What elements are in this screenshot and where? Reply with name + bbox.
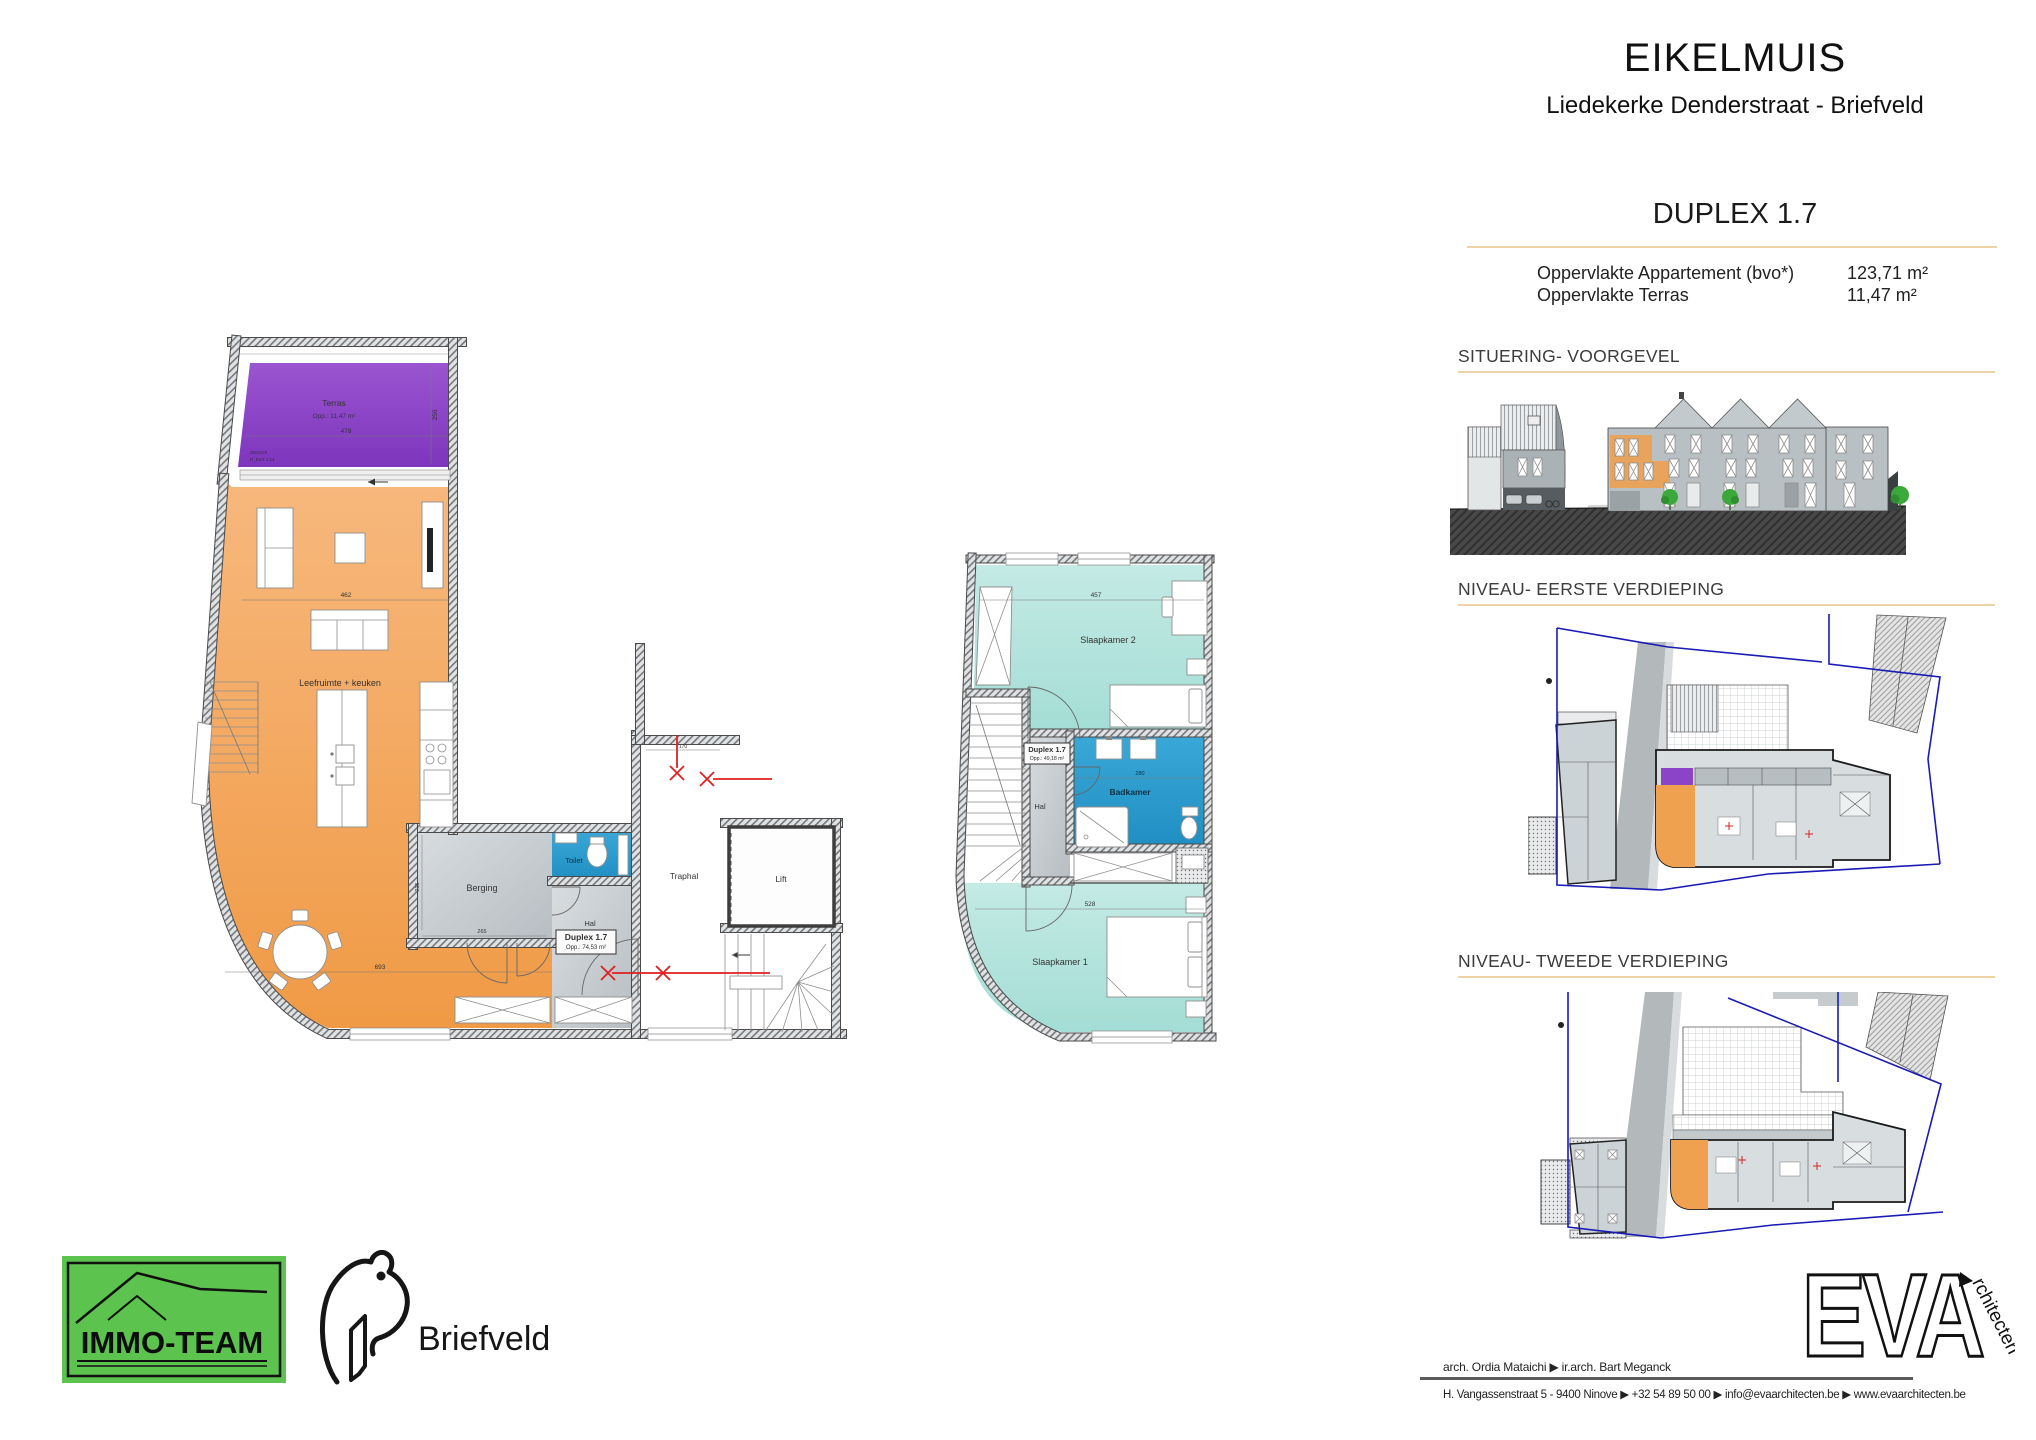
section-niveau2: NIVEAU- TWEEDE VERDIEPING — [1458, 951, 1729, 972]
area-value: 123,71 m² — [1847, 263, 1928, 283]
stairs-level2 — [963, 703, 1026, 881]
area-table: Oppervlakte Appartement (bvo*) 123,71 m²… — [1537, 262, 1928, 306]
plan-sheet: EIKELMUIS Liedekerke Denderstraat - Brie… — [0, 0, 2036, 1440]
dim-bad: 280 — [1135, 771, 1144, 777]
horse-eye — [377, 1272, 386, 1281]
briefveld-text: Briefveld — [418, 1320, 550, 1358]
tag-area: Opp.: 49,18 m² — [1030, 756, 1065, 762]
section-niveau1: NIVEAU- EERSTE VERDIEPING — [1458, 579, 1724, 600]
highlight-terras — [1661, 768, 1693, 785]
label-hal: Hal — [584, 919, 596, 928]
label-traphal: Traphal — [670, 871, 699, 881]
inner-roof-outline — [108, 1296, 166, 1320]
dim-terras-h: 250 — [432, 409, 439, 420]
area-label: Oppervlakte Terras — [1537, 284, 1842, 306]
architects-line: arch. Ordia Mataichi ▶ ir.arch. Bart Meg… — [1443, 1360, 1671, 1374]
elevation-drawing — [1448, 383, 2008, 568]
eva-logo: EVA rchitecten — [1800, 1256, 2015, 1378]
label-terras: Terras — [322, 398, 346, 408]
area-label: Oppervlakte Appartement (bvo*) — [1537, 262, 1842, 284]
dim-terras-w: 478 — [341, 428, 352, 435]
contact-line: H. Vangassenstraat 5 - 9400 Ninove ▶ +32… — [1443, 1387, 2023, 1401]
rule-niveau1 — [1458, 604, 1995, 606]
dim-living-w: 693 — [375, 964, 386, 971]
left-house — [1468, 405, 1565, 510]
immoteam-text: IMMO-TEAM — [81, 1325, 264, 1360]
dim-traphal: 170 — [679, 744, 688, 750]
label-terras-note1: 350x220 — [250, 450, 268, 455]
eva-letters: EVA — [1802, 1256, 1984, 1378]
dim-berging-w: 265 — [477, 929, 486, 935]
sliding-door — [240, 470, 450, 486]
floorplan-level2: 457 528 280 Slaapkamer 2 Slaapkamer 1 Ba… — [940, 545, 1240, 1055]
dim-s1: 528 — [1085, 901, 1096, 908]
dim-living-mid: 462 — [341, 592, 352, 599]
dim-berging-h: 215 — [415, 882, 421, 891]
rule-niveau2 — [1458, 976, 1995, 978]
horse-icon — [322, 1252, 407, 1382]
label-slaapkamer1: Slaapkamer 1 — [1032, 957, 1088, 967]
label-living: Leefruimte + keuken — [299, 678, 381, 688]
immoteam-logo-art: IMMO-TEAM — [62, 1256, 286, 1383]
label-terras-area: Opp.: 11,47 m² — [313, 413, 357, 420]
immoteam-logo: IMMO-TEAM — [62, 1256, 286, 1383]
label-slaapkamer2: Slaapkamer 2 — [1080, 635, 1136, 645]
siteplan-level1 — [1528, 612, 1998, 922]
unit-tag-level2: Duplex 1.7 Opp.: 49,18 m² — [1024, 743, 1070, 764]
tag-area: Opp.: 74,53 m² — [566, 945, 606, 951]
rule-situering — [1458, 371, 1995, 373]
page-subtitle: Liedekerke Denderstraat - Briefveld — [1520, 92, 1950, 120]
footer-divider — [1420, 1377, 1913, 1380]
area-row-appartement: Oppervlakte Appartement (bvo*) 123,71 m² — [1537, 262, 1928, 284]
label-lift: Lift — [775, 874, 787, 884]
unit-tag-level1: Duplex 1.7 Opp.: 74,53 m² — [556, 930, 616, 954]
label-toilet: Toilet — [565, 856, 583, 865]
area-row-terras: Oppervlakte Terras 11,47 m² — [1537, 284, 1928, 306]
label-berging: Berging — [466, 883, 497, 893]
tag-title: Duplex 1.7 — [565, 932, 608, 942]
roof-outline — [76, 1273, 267, 1323]
label-terras-note2: R_BuR 1,14 — [250, 457, 275, 462]
section-situering: SITUERING- VOORGEVEL — [1458, 346, 1680, 367]
area-value: 11,47 m² — [1847, 285, 1917, 305]
highlight-duplex — [1656, 785, 1695, 867]
briefveld-logo: Briefveld — [315, 1250, 555, 1395]
dim-s2: 457 — [1091, 592, 1102, 599]
page-title: EIKELMUIS — [1560, 36, 1910, 81]
highlight-duplex — [1671, 1140, 1708, 1209]
unit-name: DUPLEX 1.7 — [1560, 198, 1910, 231]
briefveld-logo-art: Briefveld — [315, 1250, 555, 1390]
label-badkamer: Badkamer — [1109, 787, 1151, 797]
tag-title: Duplex 1.7 — [1028, 745, 1066, 754]
rule-under-unit — [1467, 246, 1997, 248]
label-hal2: Hal — [1034, 802, 1046, 811]
floorplan-level1: 478 250 462 693 265 215 170 Terras Opp.:… — [150, 330, 870, 1090]
townhouse-row — [1608, 392, 1909, 511]
